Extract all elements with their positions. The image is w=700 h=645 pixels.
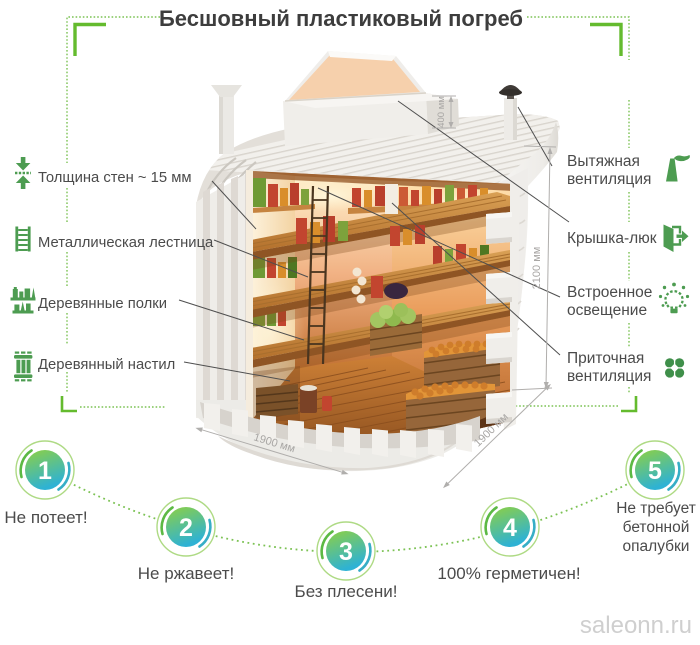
- svg-text:Не ржавеет!: Не ржавеет!: [138, 564, 234, 583]
- svg-text:вентиляция: вентиляция: [567, 368, 651, 385]
- svg-text:Бесшовный пластиковый погреб: Бесшовный пластиковый погреб: [159, 6, 523, 31]
- svg-text:Встроенное: Встроенное: [567, 284, 652, 301]
- svg-text:4: 4: [503, 514, 517, 542]
- svg-text:Металлическая лестница: Металлическая лестница: [38, 235, 214, 251]
- svg-text:Толщина стен ~ 15 мм: Толщина стен ~ 15 мм: [38, 170, 192, 186]
- svg-text:Приточная: Приточная: [567, 350, 644, 367]
- svg-text:Деревянные полки: Деревянные полки: [38, 296, 167, 312]
- svg-text:Крышка-люк: Крышка-люк: [567, 230, 657, 247]
- svg-text:400 мм: 400 мм: [436, 96, 447, 128]
- svg-text:бетонной: бетонной: [623, 519, 690, 536]
- svg-text:освещение: освещение: [567, 302, 647, 319]
- svg-text:1: 1: [38, 457, 52, 485]
- svg-text:3: 3: [339, 538, 353, 566]
- svg-text:100% герметичен!: 100% герметичен!: [437, 564, 580, 583]
- svg-text:Не потеет!: Не потеет!: [4, 508, 87, 527]
- svg-text:2: 2: [179, 514, 193, 542]
- svg-text:5: 5: [648, 457, 662, 485]
- svg-text:Деревянный настил: Деревянный настил: [38, 357, 175, 373]
- svg-text:Без плесени!: Без плесени!: [295, 582, 398, 601]
- svg-text:опалубки: опалубки: [623, 538, 690, 555]
- svg-text:Не требует: Не требует: [616, 500, 696, 517]
- svg-text:вентиляция: вентиляция: [567, 171, 651, 188]
- svg-text:2100 мм: 2100 мм: [531, 247, 543, 290]
- svg-text:Вытяжная: Вытяжная: [567, 153, 640, 170]
- svg-text:saleonn.ru: saleonn.ru: [580, 612, 692, 639]
